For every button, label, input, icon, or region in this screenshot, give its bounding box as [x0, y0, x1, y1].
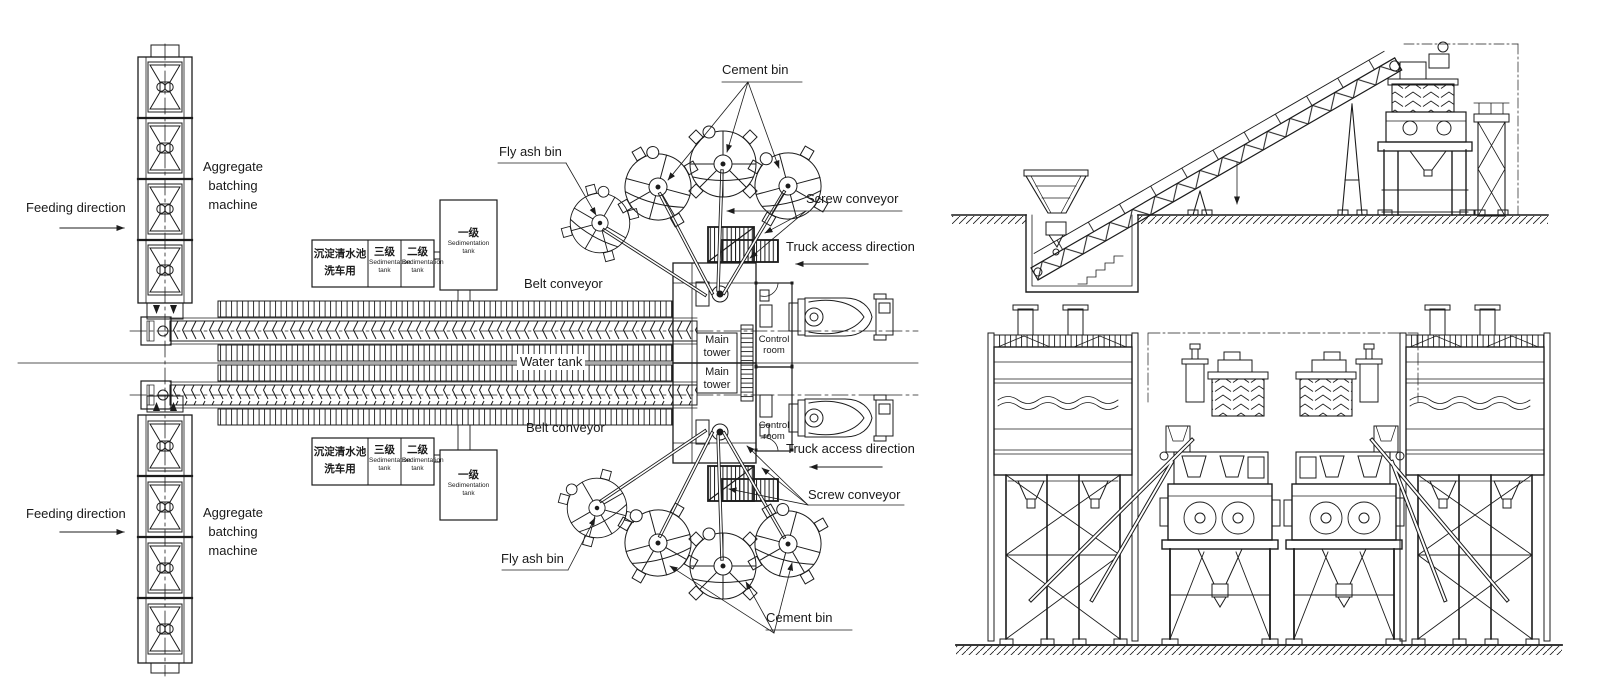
screw-conveyors-elevation — [1031, 440, 1507, 600]
screw-conveyor-label-bottom: Screw conveyor — [808, 487, 900, 503]
truck-access-direction-label-bottom: Truck access direction — [786, 441, 915, 457]
aggregate-batching-machine-label-top: Aggregate batching machine — [190, 157, 276, 214]
feeding-direction-label-bottom: Feeding direction — [26, 506, 126, 522]
front-elevation-mixing-line — [956, 305, 1562, 655]
inclined-belt-conveyor — [1026, 48, 1403, 280]
cement-bin-bottom-plan-1 — [615, 497, 699, 584]
diagram-linework — [0, 0, 1600, 700]
mixer-unit-elevation-right — [1284, 344, 1404, 645]
sed-level3-label-top: 三级 Sedimentation tank — [369, 245, 400, 274]
cement-bin-bottom-plan-2 — [689, 528, 757, 600]
belt-conveyor-label-top: Belt conveyor — [524, 276, 603, 292]
truck-access-direction-label-top: Truck access direction — [786, 239, 915, 255]
sed-level2-label-top: 二级 Sedimentation tank — [402, 245, 433, 274]
fly-ash-bin-label-top: Fly ash bin — [499, 144, 562, 160]
side-elevation-feeding-line — [952, 42, 1548, 292]
batching-plant-layout-diagram: Feeding direction Feeding direction Aggr… — [0, 0, 1600, 700]
screw-conveyor-label-top: Screw conveyor — [806, 191, 898, 207]
cement-bin-label-bottom: Cement bin — [766, 610, 832, 626]
mixer-truck-top — [789, 294, 893, 340]
fly-ash-bin-label-bottom: Fly ash bin — [501, 551, 564, 567]
belt-conveyor-bottom-plan — [141, 365, 697, 425]
sed-level2-label-bottom: 二级 Sedimentation tank — [402, 443, 433, 472]
mixer-truck-bottom — [789, 395, 893, 441]
sed-washpool-label-top: 沉淀清水池 洗车用 — [313, 246, 367, 280]
aggregate-batching-machine-label-bottom: Aggregate batching machine — [190, 503, 276, 560]
main-tower-plan — [673, 263, 756, 463]
cement-bin-top-plan-3 — [745, 140, 829, 227]
cement-silo-elevation-left — [988, 305, 1138, 645]
sed-level1-label-bottom: 一级 Sedimentation tank — [441, 468, 496, 497]
cement-bin-label-top: Cement bin — [722, 62, 788, 78]
belt-conveyor-label-bottom: Belt conveyor — [526, 420, 605, 436]
sed-level1-label-top: 一级 Sedimentation tank — [441, 226, 496, 255]
screw-conveyor-tubes-top — [604, 171, 784, 295]
cement-silo-elevation-right — [1400, 305, 1550, 645]
mixer-unit-elevation-left — [1160, 344, 1280, 645]
fly-ash-bin-top-plan — [558, 178, 644, 265]
feeding-direction-label-top: Feeding direction — [26, 200, 126, 216]
control-room-label-top: Control room — [754, 334, 794, 356]
sed-level3-label-bottom: 三级 Sedimentation tank — [369, 443, 400, 472]
cement-bin-top-plan-2 — [689, 126, 757, 198]
main-tower-label-top: Main tower — [697, 334, 737, 360]
water-tank-label: Water tank — [517, 354, 585, 370]
main-tower-label-bottom: Main tower — [697, 366, 737, 392]
control-room-label-bottom: Control room — [754, 420, 794, 442]
sed-washpool-label-bottom: 沉淀清水池 洗车用 — [313, 444, 367, 478]
belt-conveyor-top-plan — [141, 301, 697, 361]
cement-bin-bottom-plan-3 — [746, 498, 830, 585]
